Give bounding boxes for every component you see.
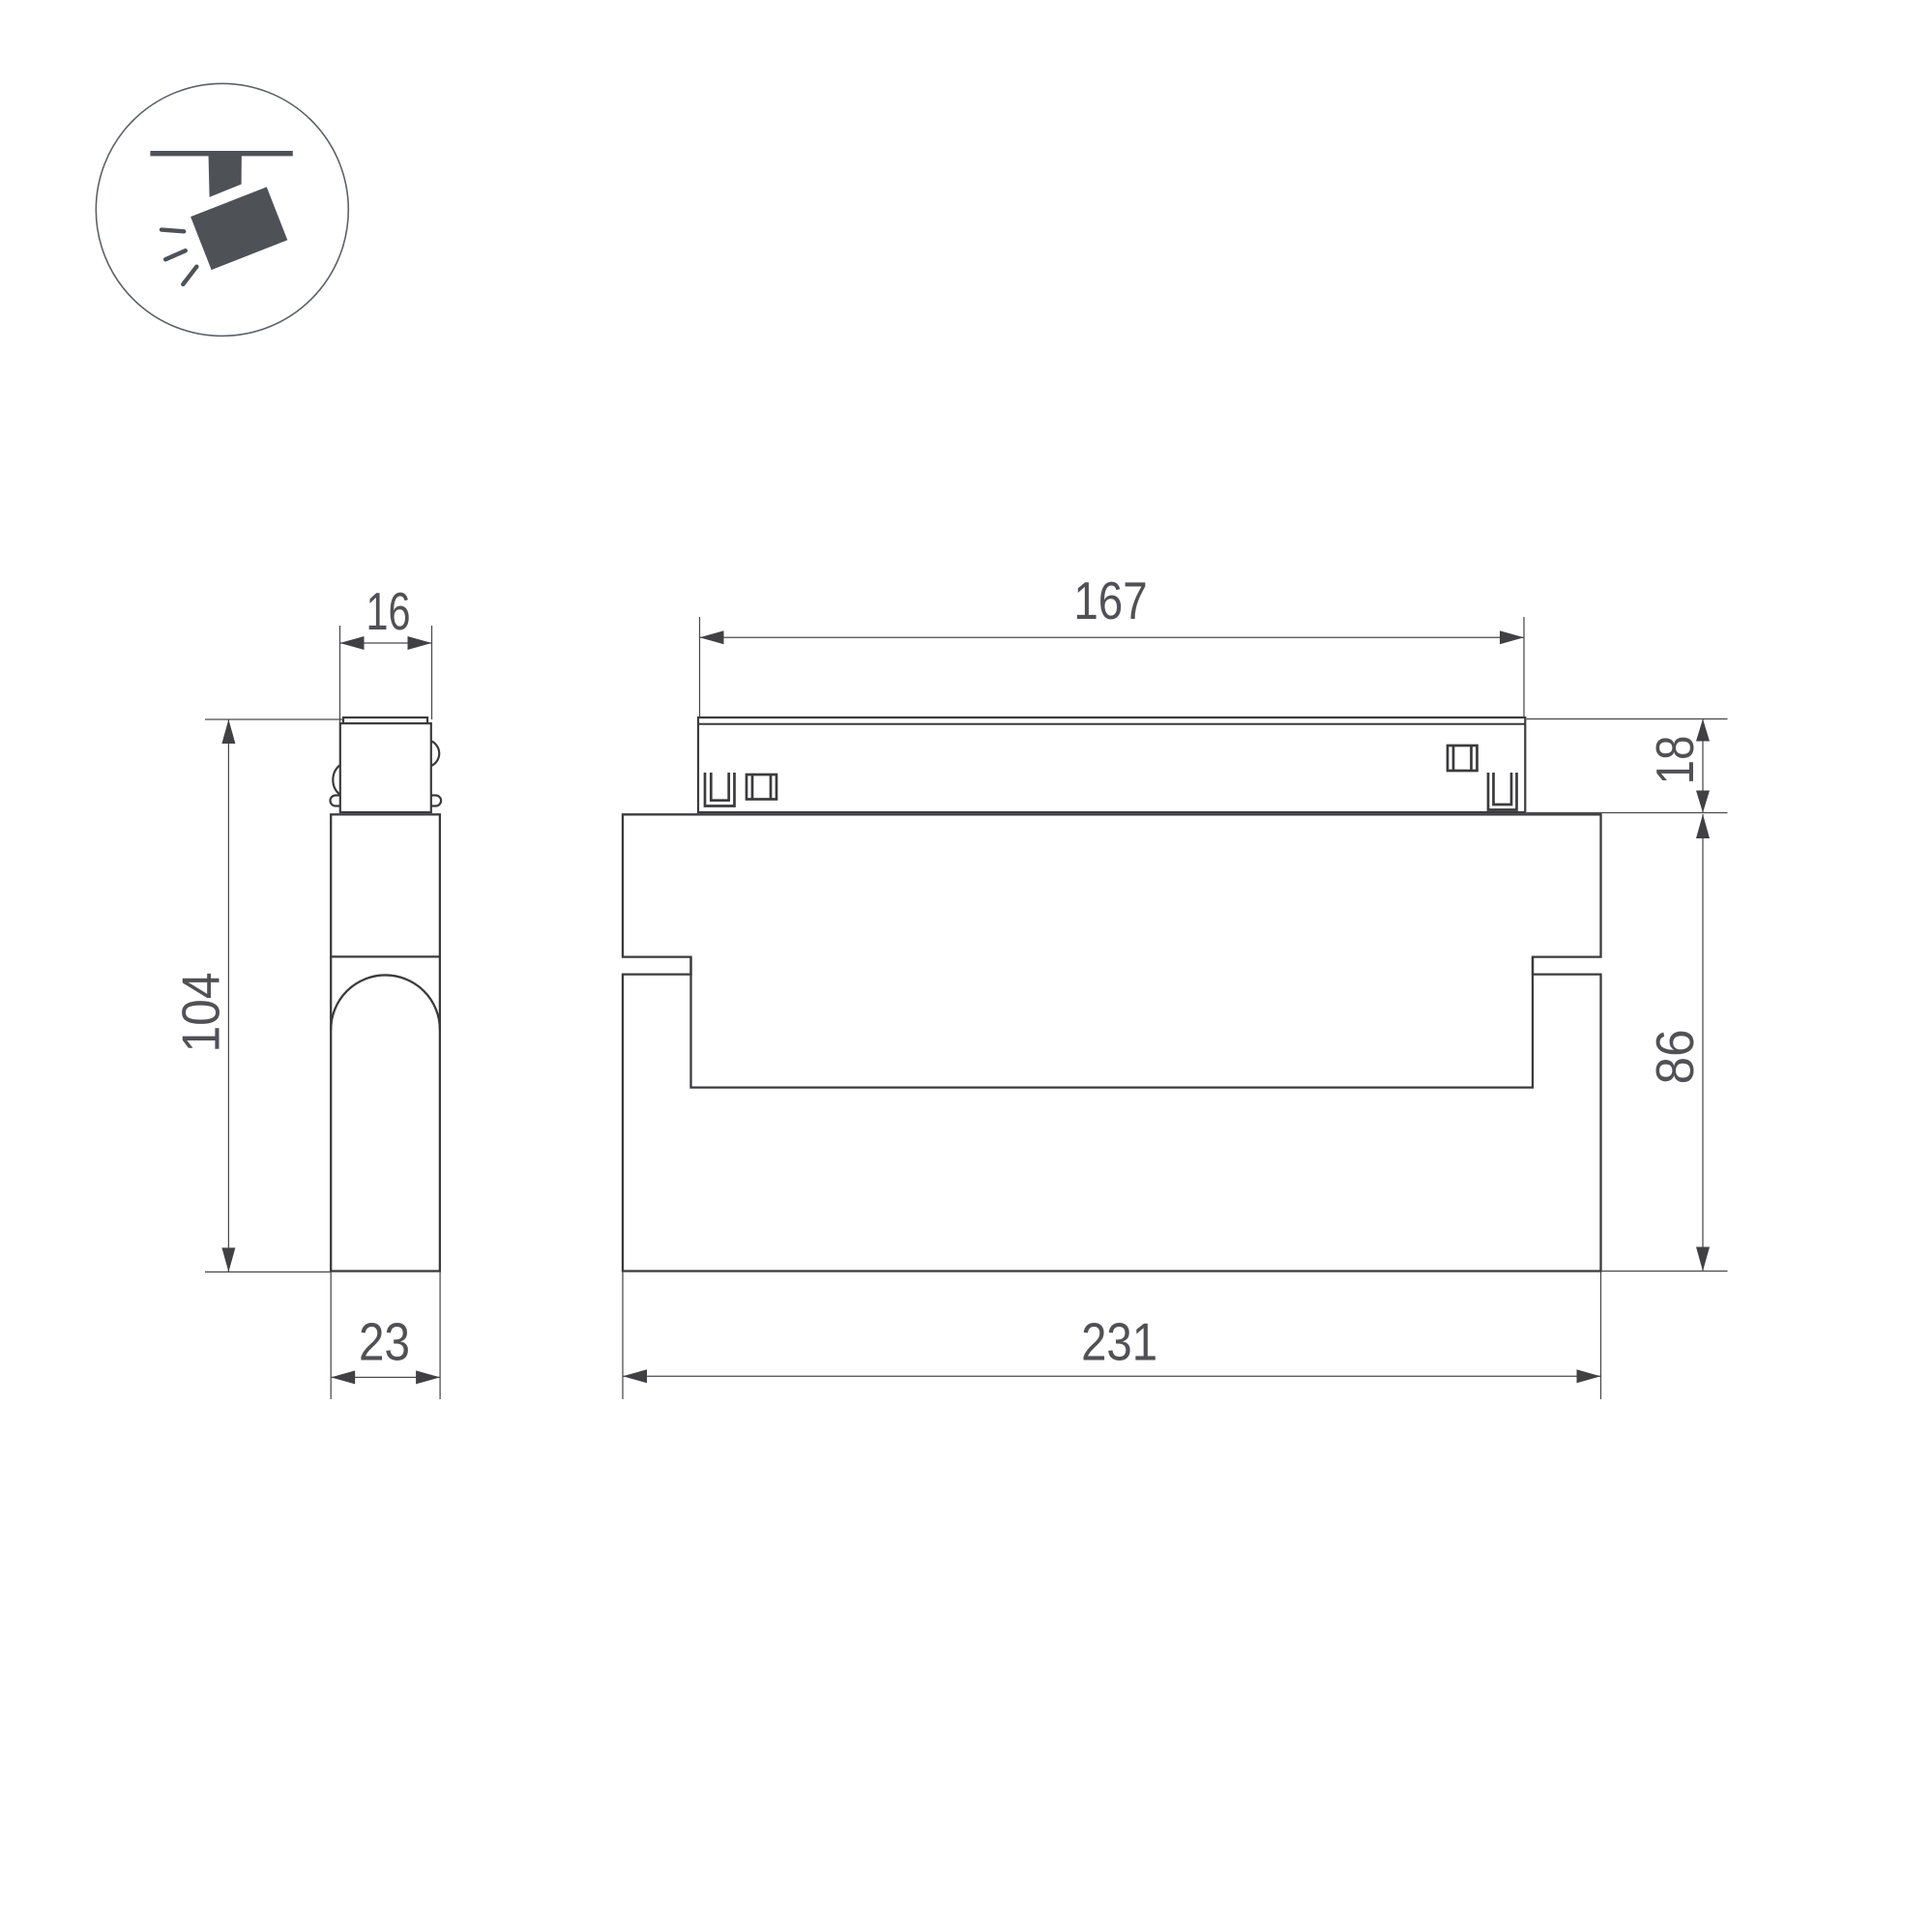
- svg-text:104: 104: [172, 973, 231, 1053]
- svg-text:16: 16: [366, 582, 411, 641]
- svg-text:18: 18: [1646, 736, 1705, 785]
- svg-text:167: 167: [1073, 571, 1147, 630]
- svg-text:23: 23: [359, 1313, 410, 1372]
- svg-text:231: 231: [1081, 1313, 1157, 1372]
- svg-text:86: 86: [1646, 1029, 1705, 1084]
